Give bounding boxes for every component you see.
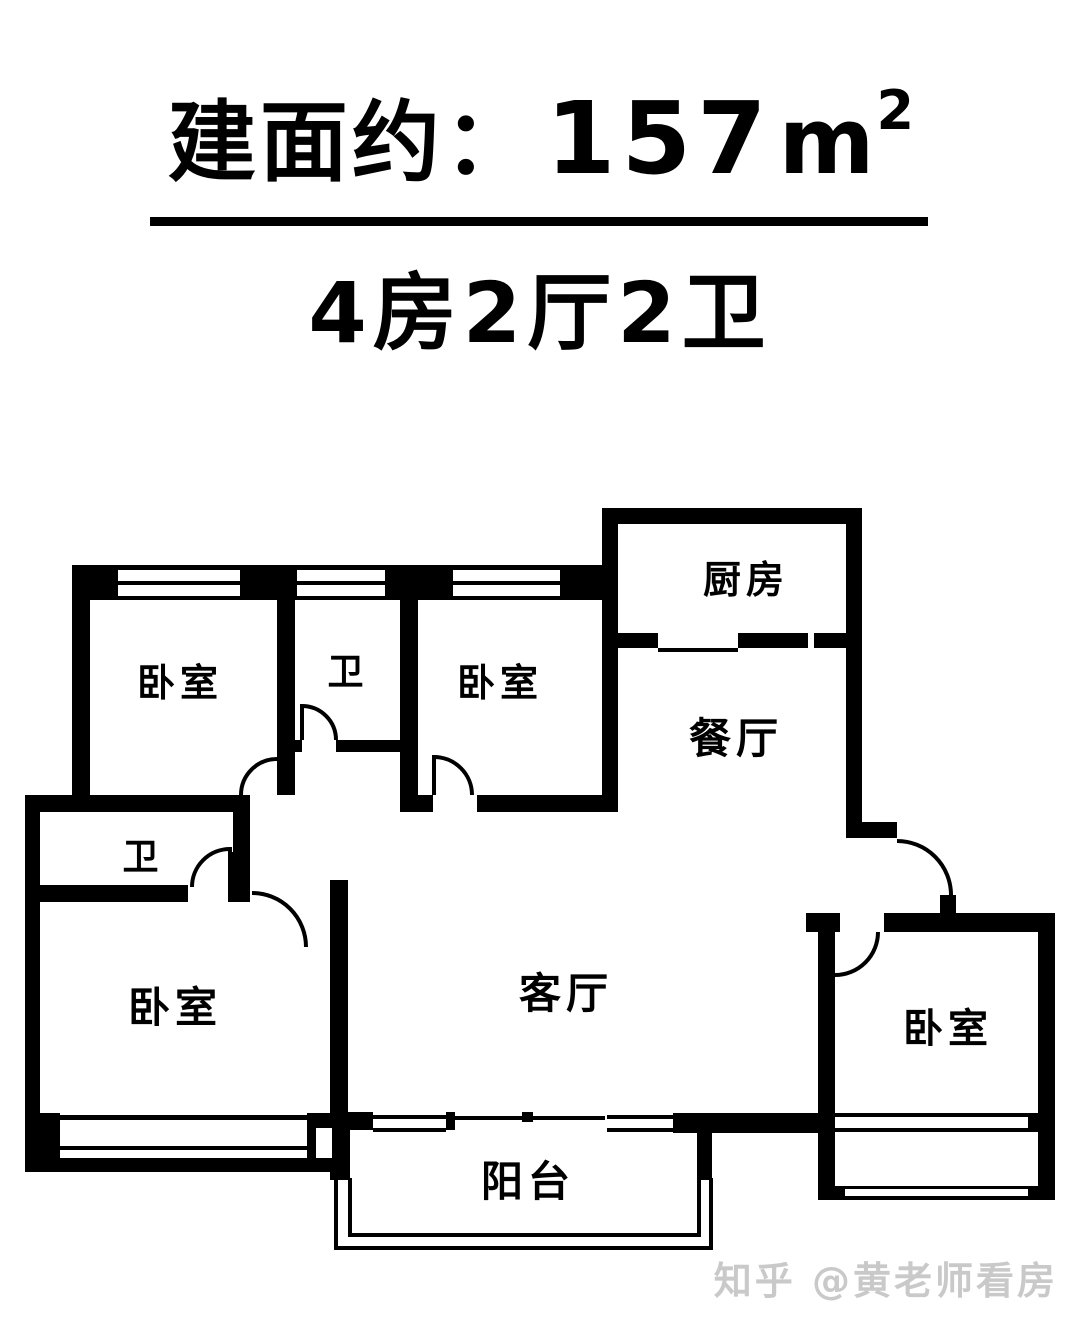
door-bedroom2 <box>434 757 472 795</box>
door-bath-top <box>302 706 336 740</box>
label-bedroom-top-right: 卧室 <box>457 661 543 705</box>
bedroom1-right-wall <box>277 600 295 795</box>
kitchen-top-wall <box>602 508 862 524</box>
door-bath-left <box>192 849 230 887</box>
bath2-bottom-wall <box>40 885 188 902</box>
right-outer-wall <box>1038 913 1055 1200</box>
bedroom2-left-wall <box>400 600 418 812</box>
walls <box>25 508 1055 1200</box>
left-outer-wall-top <box>72 565 90 812</box>
door-bedroom3 <box>252 893 306 947</box>
right-wall <box>846 508 862 838</box>
watermark: 知乎 @黄老师看房 <box>714 1250 1058 1305</box>
balcony-door-threshold <box>455 1116 605 1120</box>
label-living-room: 客厅 <box>519 969 613 1018</box>
door-arcs <box>192 706 951 975</box>
kitchen-left-wall <box>602 508 618 812</box>
label-bedroom-top-left: 卧室 <box>137 661 223 705</box>
door-bedroom1 <box>241 759 277 795</box>
entry-jog-wall <box>846 822 897 838</box>
label-bedroom-bottom-left: 卧室 <box>128 983 222 1032</box>
wall-slots <box>316 1128 1028 1196</box>
kitchen-door-threshold <box>658 648 738 652</box>
label-kitchen: 厨房 <box>703 558 789 602</box>
door-entry <box>897 841 951 895</box>
floor-plan: 卧室 卫 卧室 厨房 餐厅 卫 卧室 客厅 阳台 卧室 <box>0 0 1080 1320</box>
bedroom4-left-wall <box>818 932 835 1200</box>
label-bath-left: 卫 <box>122 837 163 878</box>
room-labels: 卧室 卫 卧室 厨房 餐厅 卫 卧室 客厅 阳台 卧室 <box>122 558 993 1206</box>
label-dining-room: 餐厅 <box>689 714 783 763</box>
living-left-wall <box>330 880 348 1113</box>
door-bedroom4 <box>835 932 878 975</box>
label-bath-top: 卫 <box>327 652 368 693</box>
label-balcony: 阳台 <box>481 1157 575 1206</box>
label-bedroom-bottom-right: 卧室 <box>903 1006 993 1052</box>
